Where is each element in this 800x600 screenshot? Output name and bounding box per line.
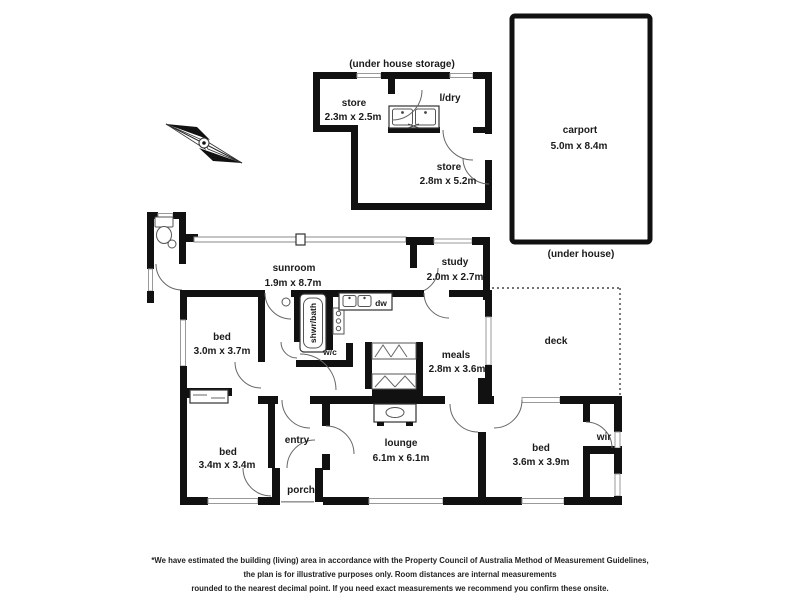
window bbox=[181, 320, 186, 366]
room-dims-meals: 2.8m x 3.6m bbox=[429, 364, 486, 375]
carport-note: (under house) bbox=[548, 249, 615, 260]
deck: deck bbox=[492, 288, 620, 396]
window bbox=[357, 74, 381, 78]
floor-plan-canvas: (under house storage) store 2. bbox=[0, 0, 800, 600]
room-label-study: study bbox=[442, 257, 469, 268]
room-label-bed3: bed bbox=[532, 443, 550, 454]
room-label-sunroom: sunroom bbox=[273, 263, 316, 274]
storage-header: (under house storage) bbox=[349, 59, 455, 70]
room-dims-store2: 2.8m x 5.2m bbox=[420, 176, 477, 187]
door-arc bbox=[156, 264, 182, 290]
fireplace bbox=[374, 404, 416, 426]
room-label-lounge: lounge bbox=[385, 438, 418, 449]
window bbox=[522, 398, 560, 403]
room-label-wir: wir bbox=[596, 432, 612, 443]
room-dims-sunroom: 1.9m x 8.7m bbox=[265, 278, 322, 289]
bed2-robe bbox=[190, 390, 228, 403]
window bbox=[615, 474, 620, 496]
hall-closets bbox=[372, 343, 416, 389]
room-label-meals: meals bbox=[442, 350, 471, 361]
carport: carport 5.0m x 8.4m (under house) bbox=[512, 16, 650, 260]
room-dims-store1: 2.3m x 2.5m bbox=[325, 112, 382, 123]
window bbox=[369, 499, 443, 504]
room-label-store2: store bbox=[437, 162, 462, 173]
window bbox=[522, 499, 564, 504]
window bbox=[450, 74, 473, 78]
room-dims-bed3: 3.6m x 3.9m bbox=[513, 457, 570, 468]
window bbox=[615, 432, 620, 448]
room-label-bed2: bed bbox=[219, 447, 237, 458]
house-walls bbox=[180, 290, 622, 505]
room-dims-carport: 5.0m x 8.4m bbox=[551, 141, 608, 152]
window bbox=[434, 239, 472, 243]
wc-annex bbox=[147, 212, 198, 303]
stove bbox=[333, 308, 344, 334]
room-label-deck: deck bbox=[545, 336, 568, 347]
label-dishwasher: dw bbox=[375, 298, 387, 308]
room-label-entry: entry bbox=[285, 435, 310, 446]
room-label-bath: shwr/bath bbox=[308, 303, 318, 343]
storage-building: (under house storage) store 2. bbox=[313, 59, 492, 210]
basin bbox=[168, 240, 176, 248]
door-arc bbox=[443, 130, 473, 160]
window-post bbox=[296, 234, 305, 245]
room-label-porch: porch bbox=[287, 485, 315, 496]
footer-line-3: rounded to the nearest decimal point. If… bbox=[191, 584, 608, 593]
window bbox=[149, 269, 153, 291]
window bbox=[208, 499, 258, 504]
room-label-wc: w/c bbox=[322, 347, 337, 357]
room-label-laundry: l/dry bbox=[439, 93, 461, 104]
toilet bbox=[155, 217, 173, 244]
vanity-basin bbox=[282, 298, 290, 306]
footer-disclaimer: *We have estimated the building (living)… bbox=[151, 556, 648, 593]
room-label-carport: carport bbox=[563, 125, 598, 136]
footer-line-1: *We have estimated the building (living)… bbox=[151, 556, 648, 565]
floor-plan-page: (under house storage) store 2. bbox=[0, 0, 800, 600]
room-label-store1: store bbox=[342, 98, 367, 109]
footer-line-2: the plan is for illustrative purposes on… bbox=[243, 570, 557, 579]
room-dims-lounge: 6.1m x 6.1m bbox=[373, 453, 430, 464]
window bbox=[486, 317, 491, 365]
room-label-bed1: bed bbox=[213, 332, 231, 343]
room-dims-study: 2.0m x 2.7m bbox=[427, 272, 484, 283]
room-dims-bed1: 3.0m x 3.7m bbox=[194, 346, 251, 357]
north-arrow-icon bbox=[166, 124, 242, 163]
room-dims-bed2: 3.4m x 3.4m bbox=[199, 460, 256, 471]
laundry-sink bbox=[389, 106, 439, 128]
